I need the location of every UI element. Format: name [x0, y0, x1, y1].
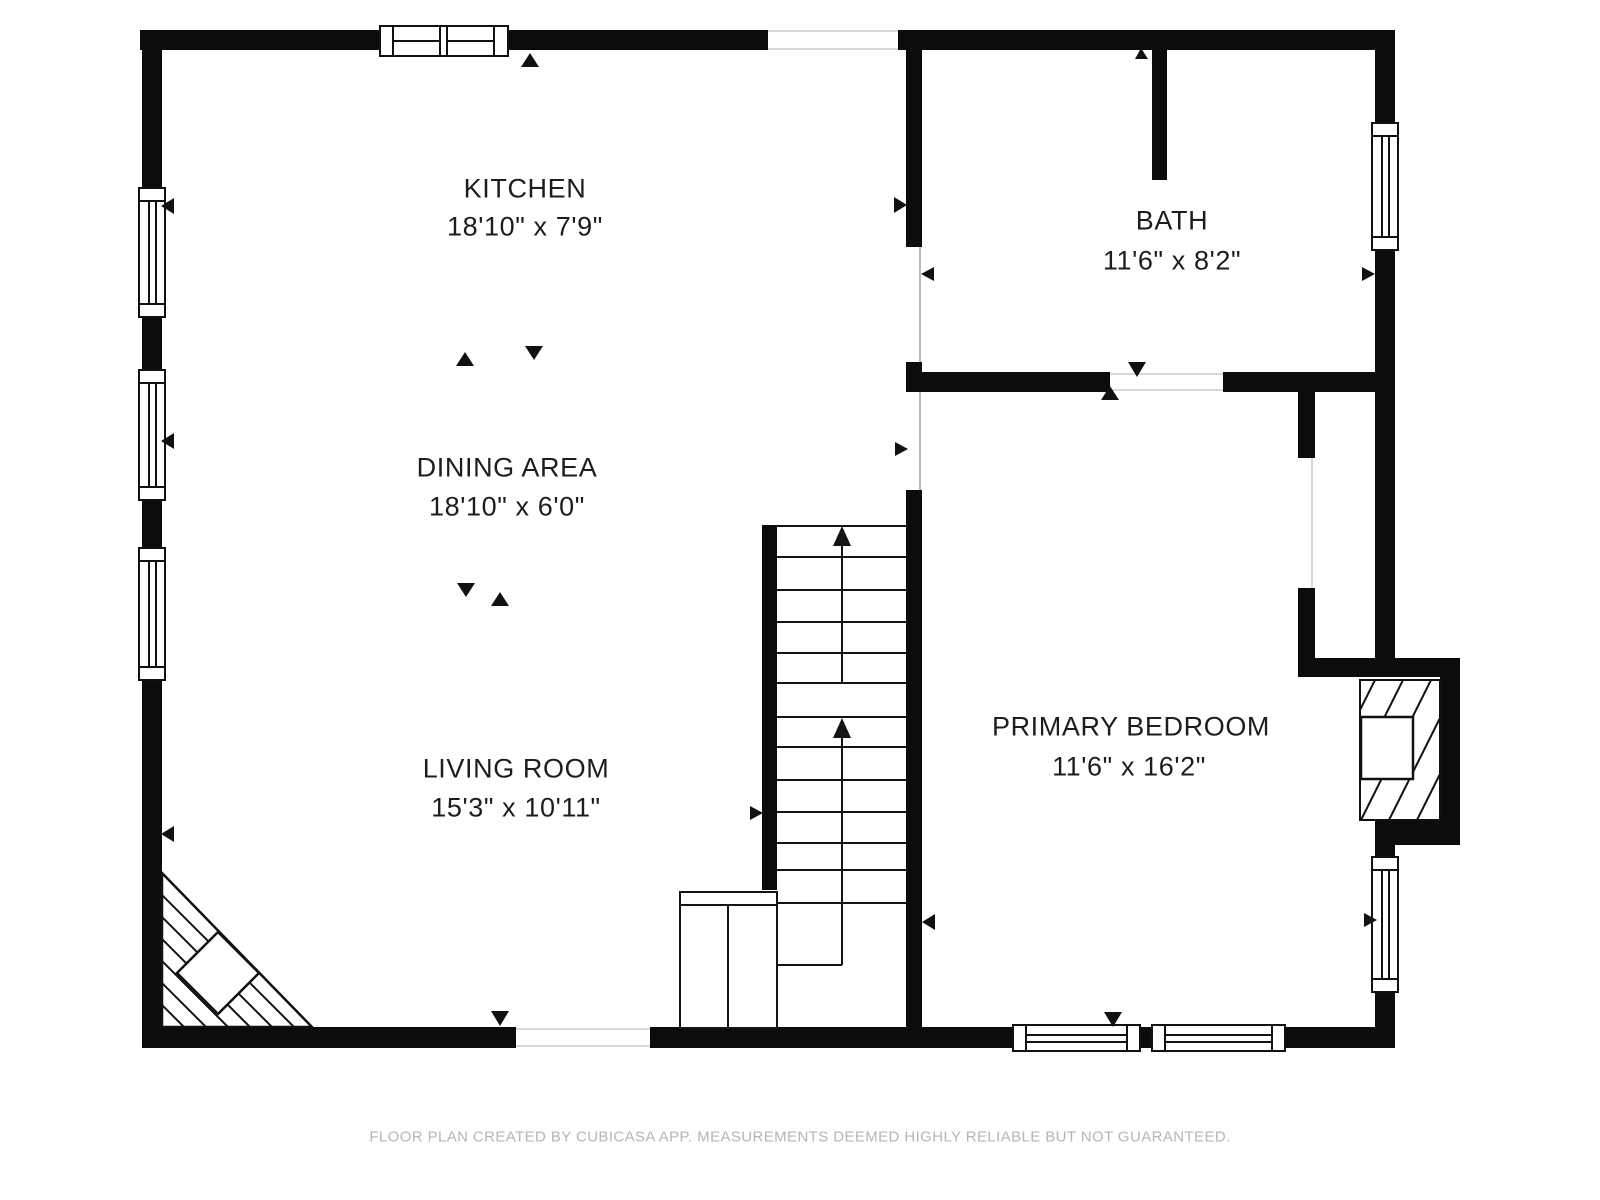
marker-down-icon: [491, 1011, 509, 1026]
wall-bath-bottom-right: [1223, 372, 1395, 392]
room-label-living-room: LIVING ROOM: [423, 754, 610, 785]
room-dimensions-bath: 11'6" x 8'2": [1103, 246, 1241, 277]
marker-up-icon: [491, 592, 509, 606]
marker-down-icon: [525, 346, 543, 360]
staircase: [680, 526, 906, 1028]
walls: [140, 30, 1460, 1048]
window-bedroom-bottom-2: [1152, 1025, 1285, 1051]
room-dimensions-kitchen: 18'10" x 7'9": [447, 212, 603, 243]
marker-right-icon: [894, 197, 907, 213]
bedroom-firebox: [1361, 717, 1413, 779]
wall-fireplace-top: [1298, 658, 1460, 677]
room-dimensions-dining-area: 18'10" x 6'0": [429, 492, 585, 523]
marker-right-icon: [750, 806, 763, 820]
wall-bottom-left: [142, 1027, 516, 1048]
floor-plan: KITCHEN 18'10" x 7'9" DINING AREA 18'10"…: [0, 0, 1600, 1200]
footer-disclaimer: FLOOR PLAN CREATED BY CUBICASA APP. MEAS…: [369, 1129, 1230, 1146]
wall-divider-bottom: [906, 490, 922, 1048]
wall-top-right: [898, 30, 1395, 50]
window-bath-right: [1372, 123, 1398, 250]
room-label-primary-bedroom: PRIMARY BEDROOM: [992, 712, 1270, 743]
room-label-dining-area: DINING AREA: [417, 453, 598, 484]
marker-up-icon: [456, 352, 474, 366]
window-left-1: [139, 188, 165, 317]
wall-fireplace-bottom: [1375, 820, 1460, 845]
marker-down-icon: [457, 583, 475, 597]
window-left-2: [139, 370, 165, 500]
room-label-kitchen: KITCHEN: [464, 174, 587, 205]
window-bedroom-right: [1372, 857, 1398, 992]
stair-up-arrow-icon: [833, 718, 851, 738]
marker-left-icon: [161, 826, 174, 842]
window-bedroom-bottom-1: [1013, 1025, 1140, 1051]
wall-closet-stub-lower: [1298, 588, 1315, 658]
window-top: [380, 26, 508, 56]
floor-plan-drawing: [0, 0, 1600, 1200]
wall-bath-bottom-left: [906, 372, 1110, 392]
wall-closet-stub-upper: [1298, 385, 1315, 458]
marker-right-icon: [1362, 267, 1375, 281]
wall-left: [142, 30, 162, 1048]
marker-left-icon: [922, 914, 935, 930]
marker-right-icon: [895, 442, 908, 456]
wall-fireplace-right: [1440, 658, 1460, 845]
room-dimensions-living-room: 15'3" x 10'11": [431, 793, 601, 824]
room-label-bath: BATH: [1136, 206, 1208, 237]
wall-divider-mid: [906, 362, 922, 392]
marker-left-icon: [921, 267, 934, 281]
marker-up-icon: [521, 53, 539, 67]
wall-divider-top: [906, 30, 922, 247]
wall-bath-stub: [1152, 48, 1167, 180]
window-left-3: [139, 548, 165, 680]
stair-up-arrow-icon: [833, 526, 851, 546]
room-dimensions-primary-bedroom: 11'6" x 16'2": [1052, 752, 1206, 783]
wall-stair-left: [762, 525, 777, 890]
